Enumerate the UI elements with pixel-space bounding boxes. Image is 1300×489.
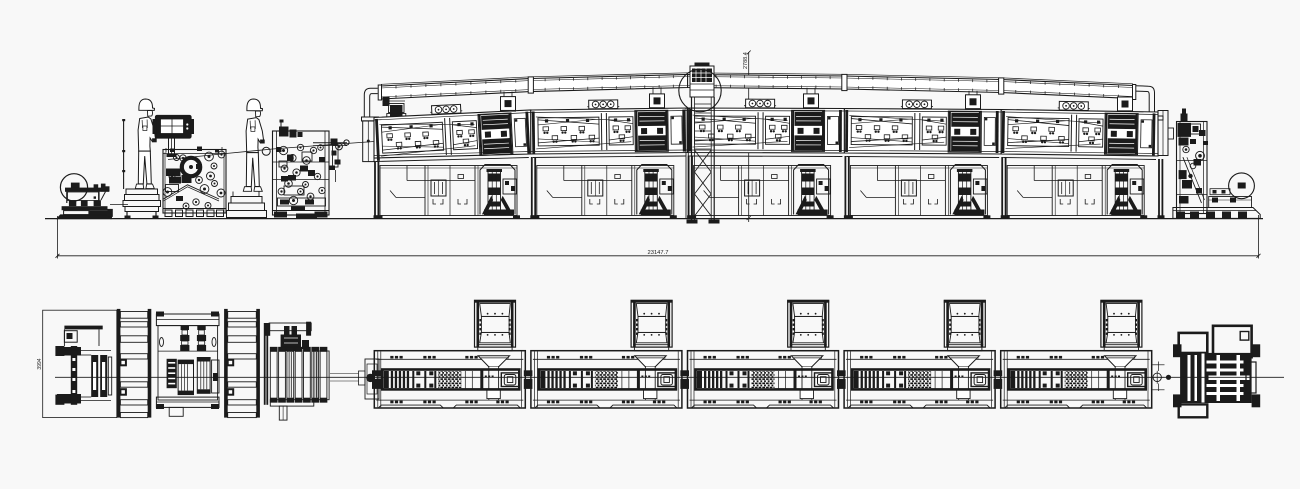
svg-text:23147.7: 23147.7 — [648, 250, 669, 256]
svg-text:3994: 3994 — [37, 358, 43, 369]
svg-text:2788.4: 2788.4 — [743, 52, 749, 69]
